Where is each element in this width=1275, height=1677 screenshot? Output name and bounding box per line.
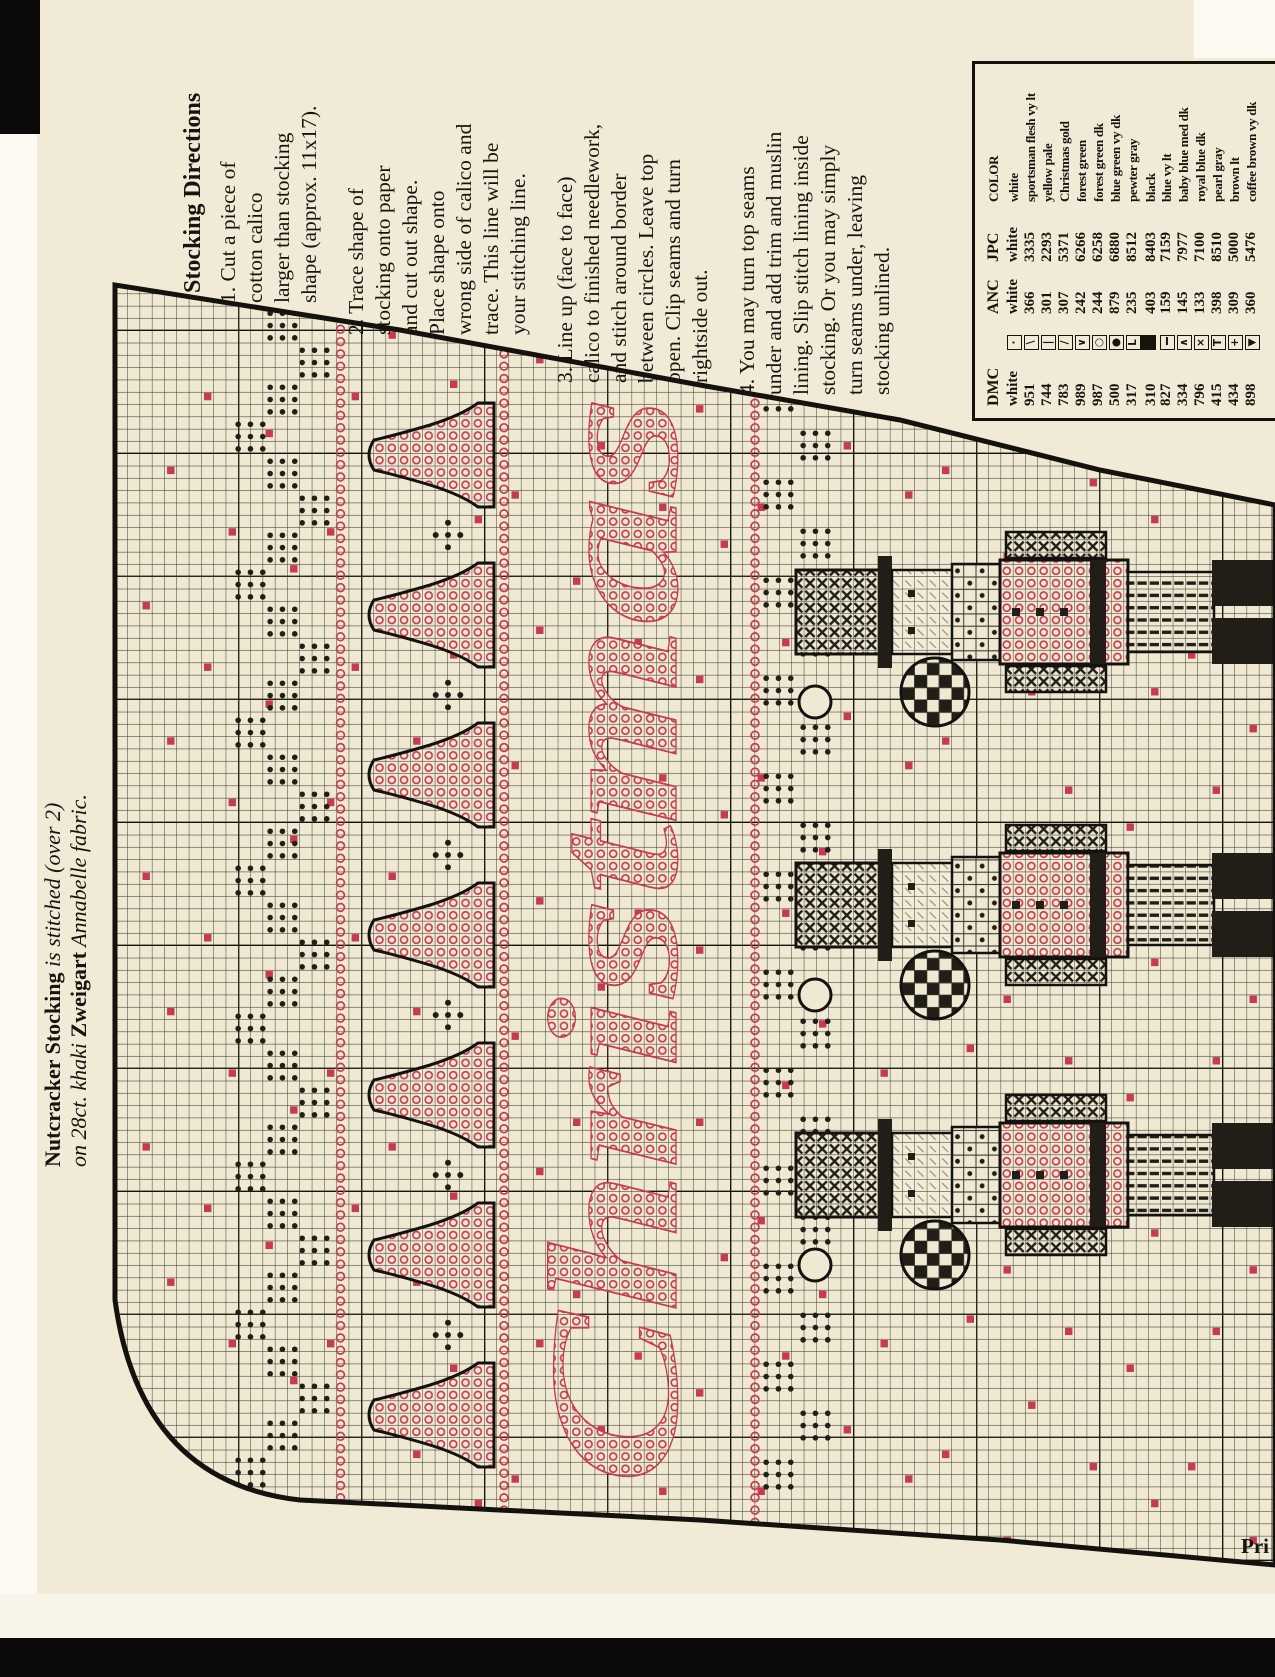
key-dmc-number: 434 (1226, 350, 1243, 406)
key-jpc-number: 5371 (1056, 202, 1073, 262)
direction-step: 1. Cut a piece of cotton calico larger t… (215, 45, 323, 303)
caption-title: Nutcracker Stocking (40, 972, 65, 1167)
key-jpc-number: 7977 (1175, 202, 1192, 262)
key-jpc-number: 8510 (1209, 202, 1226, 262)
key-row: 500●8796880blue green vy dk (1107, 64, 1124, 406)
page-margin-top-right (1194, 0, 1275, 58)
key-anc-number: 360 (1243, 262, 1260, 314)
stitch-symbol-backslash: \ (1022, 314, 1039, 350)
key-dmc-number: 783 (1056, 350, 1073, 406)
stitch-symbol-circle: ○ (1090, 314, 1107, 350)
key-color-name: sportsman flesh vy lt (1023, 64, 1039, 202)
scan-edge-black-corner (0, 0, 40, 134)
key-jpc-number: 5476 (1243, 202, 1260, 262)
stitch-symbol-chevron-down: ∨ (1073, 314, 1090, 350)
key-color-name: coffee brown vy dk (1244, 64, 1260, 202)
key-row: 317L2358512pewter gray (1124, 64, 1141, 406)
scanned-pattern-page: Christmas Nutcracker Stocking is stitche… (0, 0, 1275, 1677)
scan-edge-black-band (0, 1638, 1275, 1677)
key-color-name: Christmas gold (1057, 64, 1073, 202)
key-rows: DMCANCJPCCOLORwhite·whitewhitewhite951\3… (983, 64, 1260, 406)
key-dmc-number: 415 (1209, 350, 1226, 406)
svg-text:Christmas: Christmas (512, 395, 717, 1485)
key-anc-number: 307 (1056, 262, 1073, 314)
directions-steps: 1. Cut a piece of cotton calico larger t… (215, 45, 896, 395)
direction-step: 3. Line up (face to face) calico to fini… (552, 45, 714, 383)
key-dmc-number: 334 (1175, 350, 1192, 406)
key-jpc-number: 8512 (1124, 202, 1141, 262)
key-color-name: black (1143, 64, 1159, 202)
caption-line-2: on 28ct. khaki Zweigart Annabelle fabric… (66, 667, 92, 1167)
key-jpc-number: 3335 (1022, 202, 1039, 262)
directions-title: Stocking Directions (180, 45, 207, 293)
key-color-name: pewter gray (1125, 64, 1141, 202)
key-dmc-number: 310 (1143, 350, 1160, 406)
key-row: 987○2446258forest green dk (1090, 64, 1107, 406)
page-margin-bottom (0, 1594, 1275, 1638)
key-header-row: DMCANCJPCCOLOR (983, 64, 1005, 406)
stitch-symbol-triangle-down: ▼ (1243, 314, 1260, 350)
key-header-color: COLOR (986, 64, 1002, 202)
stitch-symbol-x-mark: × (1192, 314, 1209, 350)
page-margin-left (0, 134, 37, 1638)
stitch-symbol-tee: T (1209, 314, 1226, 350)
key-anc-number: 244 (1090, 262, 1107, 314)
key-anc-number: 366 (1022, 262, 1039, 314)
key-dmc-number: 827 (1158, 350, 1175, 406)
key-row: 796×1337100royal blue dk (1192, 64, 1209, 406)
key-row: 783/3075371Christmas gold (1056, 64, 1073, 406)
key-jpc-number: 6266 (1073, 202, 1090, 262)
key-row: 951\3663335sportsman flesh vy lt (1022, 64, 1039, 406)
key-color-name: forest green dk (1091, 64, 1107, 202)
caption-line-1: Nutcracker Stocking is stitched (over 2) (40, 667, 66, 1167)
key-dmc-number: white (1005, 350, 1022, 406)
stocking-directions-block: Stocking Directions 1. Cut a piece of co… (180, 45, 916, 395)
key-jpc-number: white (1005, 202, 1022, 262)
key-jpc-number: 5000 (1226, 202, 1243, 262)
stitch-symbol-filled-circle: ● (1107, 314, 1124, 350)
stitch-symbol-slash: / (1056, 314, 1073, 350)
key-jpc-number: 7159 (1158, 202, 1175, 262)
key-color-name: royal blue dk (1193, 64, 1209, 202)
direction-step: 2. Trace shape of stocking onto paper an… (343, 45, 532, 335)
key-anc-number: 403 (1143, 262, 1160, 314)
key-header-anc: ANC (985, 262, 1003, 314)
stitch-symbol-ibeam: I (1158, 314, 1175, 350)
key-dmc-number: 317 (1124, 350, 1141, 406)
key-jpc-number: 2293 (1039, 202, 1056, 262)
key-color-name: yellow pale (1040, 64, 1056, 202)
key-anc-number: 242 (1073, 262, 1090, 314)
thread-color-key: DMCANCJPCCOLORwhite·whitewhitewhite951\3… (972, 61, 1275, 421)
key-jpc-number: 6880 (1107, 202, 1124, 262)
key-dmc-number: 951 (1022, 350, 1039, 406)
stitch-symbol-dot: · (1005, 314, 1022, 350)
key-jpc-number: 7100 (1192, 202, 1209, 262)
key-dmc-number: 500 (1107, 350, 1124, 406)
key-anc-number: 145 (1175, 262, 1192, 314)
key-color-name: baby blue med dk (1176, 64, 1192, 202)
key-header-dmc: DMC (985, 350, 1003, 406)
key-color-name: pearl gray (1210, 64, 1226, 202)
key-anc-number: 133 (1192, 262, 1209, 314)
key-jpc-number: 6258 (1090, 202, 1107, 262)
key-row: 898▼3605476coffee brown vy dk (1243, 64, 1260, 406)
key-anc-number: 398 (1209, 262, 1226, 314)
chart-grid-area: Christmas (110, 234, 1275, 1577)
key-anc-number: 301 (1039, 262, 1056, 314)
key-color-name: white (1006, 64, 1022, 202)
key-row: 827I1597159blue vy lt (1158, 64, 1175, 406)
key-row: 334∧1457977baby blue med dk (1175, 64, 1192, 406)
direction-step: 4. You may turn top seams under and add … (734, 45, 896, 395)
key-row: white·whitewhitewhite (1005, 64, 1022, 406)
nutcracker-figures (796, 532, 1274, 1289)
key-dmc-number: 989 (1073, 350, 1090, 406)
stitch-symbol-chevron-up: ∧ (1175, 314, 1192, 350)
key-row: 434+3095000brown lt (1226, 64, 1243, 406)
key-color-name: blue vy lt (1159, 64, 1175, 202)
key-row: 744|3012293yellow pale (1039, 64, 1056, 406)
key-header-jpc: JPC (985, 202, 1003, 262)
stitch-symbol-plus: + (1226, 314, 1243, 350)
key-color-name: blue green vy dk (1108, 64, 1124, 202)
key-dmc-number: 987 (1090, 350, 1107, 406)
rotated-page-content: Christmas Nutcracker Stocking is stitche… (0, 0, 1275, 1677)
key-dmc-number: 898 (1243, 350, 1260, 406)
key-anc-number: white (1005, 262, 1022, 314)
key-row: 989∨2426266forest green (1073, 64, 1090, 406)
stitch-symbol-corner-L: L (1124, 314, 1141, 350)
key-anc-number: 879 (1107, 262, 1124, 314)
key-row: 415T3988510pearl gray (1209, 64, 1226, 406)
key-anc-number: 235 (1124, 262, 1141, 314)
key-color-name: forest green (1074, 64, 1090, 202)
key-jpc-number: 8403 (1143, 202, 1160, 262)
stitch-symbol-vbar: | (1039, 314, 1056, 350)
key-dmc-number: 744 (1039, 350, 1056, 406)
pattern-caption: Nutcracker Stocking is stitched (over 2)… (40, 667, 92, 1167)
red-lettering-motif: Christmas (512, 395, 717, 1485)
key-color-name: brown lt (1227, 64, 1243, 202)
key-anc-number: 159 (1158, 262, 1175, 314)
key-row: 3104038403black (1141, 64, 1158, 406)
footer-page-text: Pri (1241, 1534, 1269, 1559)
key-dmc-number: 796 (1192, 350, 1209, 406)
key-anc-number: 309 (1226, 262, 1243, 314)
